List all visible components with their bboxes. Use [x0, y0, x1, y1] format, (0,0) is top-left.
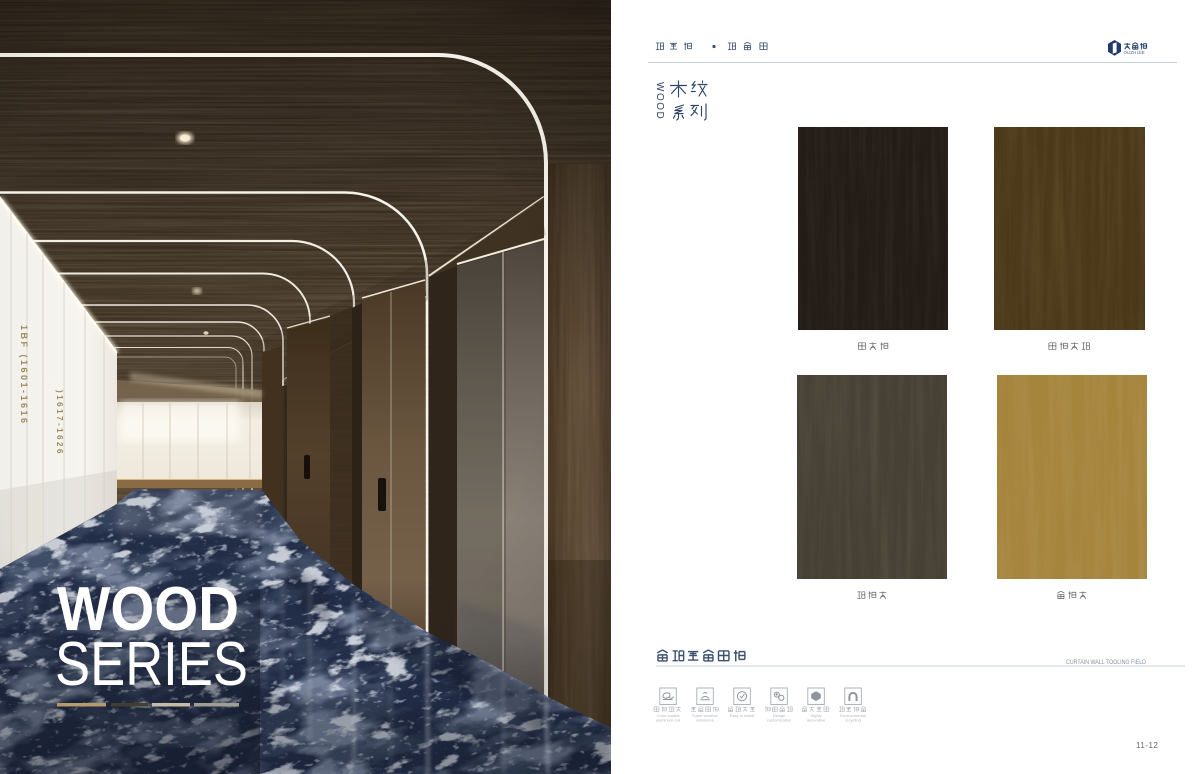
svg-text:CURTAIN WALL TOOLING FIELD: CURTAIN WALL TOOLING FIELD: [1066, 660, 1147, 666]
svg-text:aluminum coil: aluminum coil: [656, 718, 681, 723]
svg-text:Easy to install: Easy to install: [730, 713, 755, 718]
svg-text:resistance: resistance: [696, 718, 715, 723]
svg-text:recycling: recycling: [845, 718, 861, 723]
svg-text:OUZHIJIE: OUZHIJIE: [1124, 50, 1145, 55]
svg-text:decorative: decorative: [807, 718, 826, 723]
svg-text:11-12: 11-12: [1136, 741, 1158, 750]
svg-text:customization: customization: [767, 718, 791, 723]
svg-text:SERIES: SERIES: [55, 630, 248, 699]
svg-text:WOOD: WOOD: [654, 82, 665, 120]
